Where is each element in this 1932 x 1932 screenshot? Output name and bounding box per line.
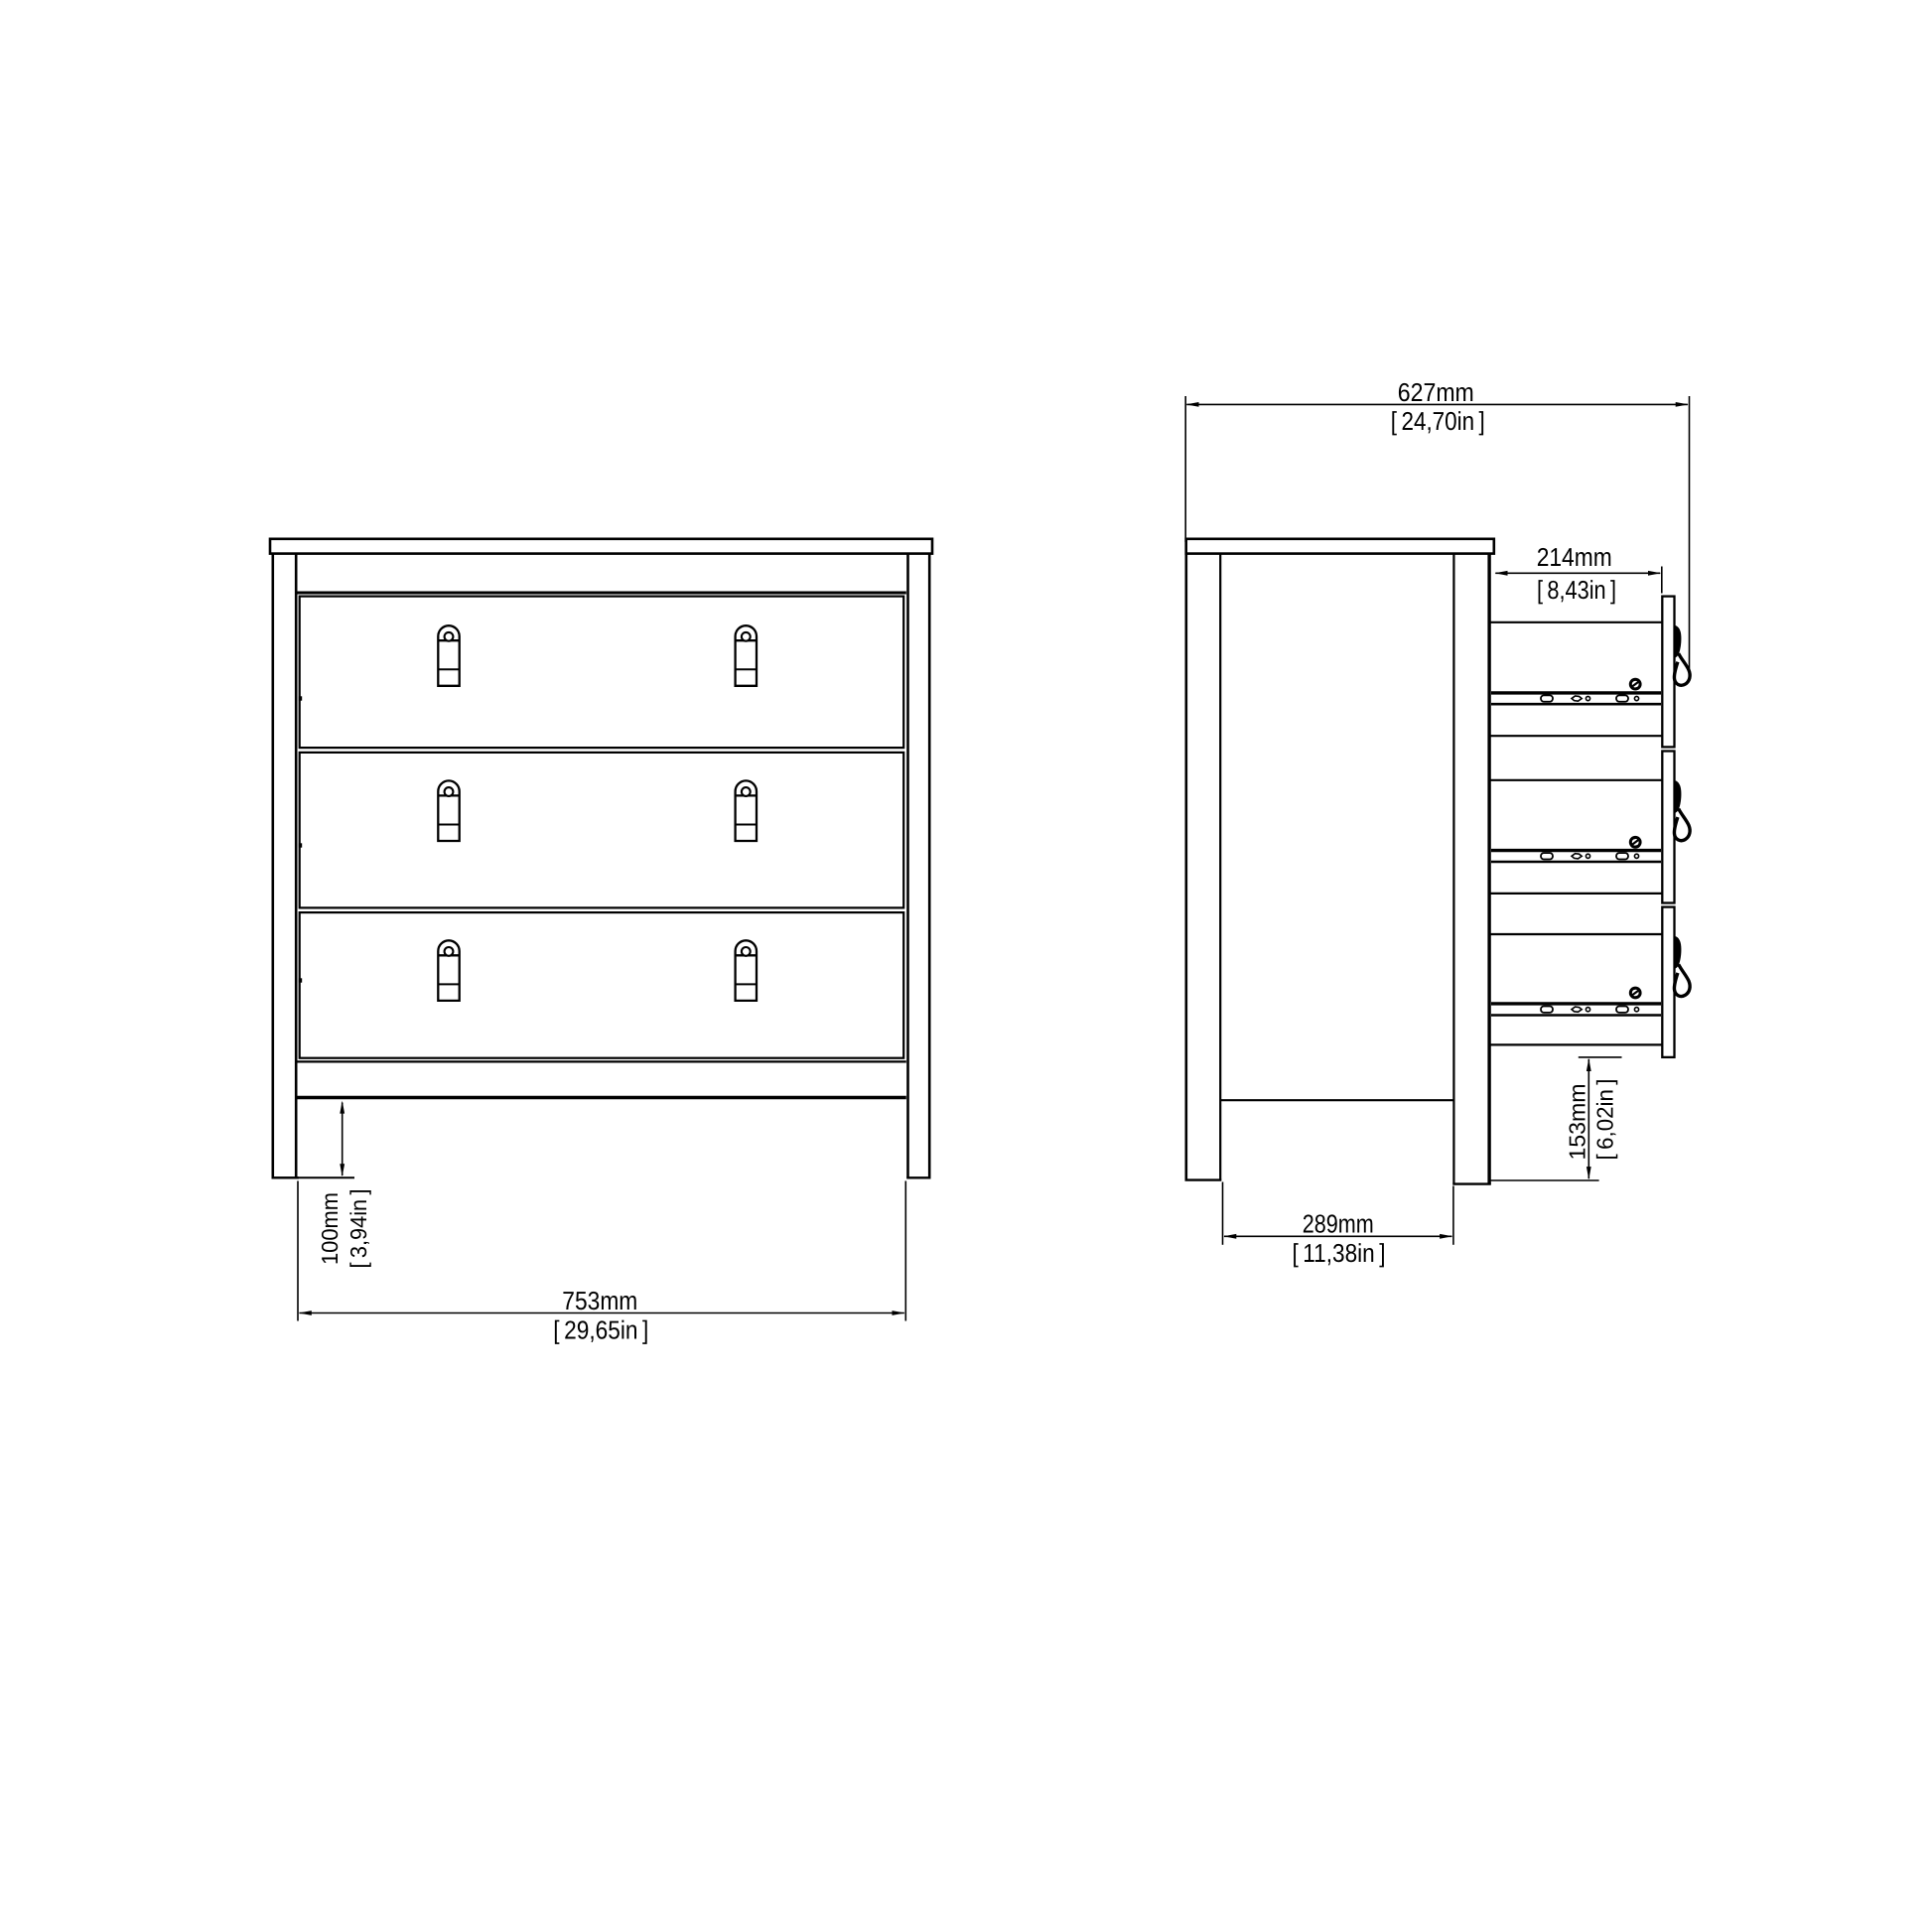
svg-text:100mm: 100mm — [317, 1192, 343, 1265]
svg-text:[ 11,38in ]: [ 11,38in ] — [1293, 1238, 1386, 1268]
svg-text:153mm: 153mm — [1565, 1084, 1590, 1161]
svg-text:214mm: 214mm — [1537, 542, 1612, 572]
svg-text:[ 3,94in ]: [ 3,94in ] — [345, 1189, 371, 1269]
svg-text:[ 24,70in ]: [ 24,70in ] — [1391, 406, 1485, 436]
svg-text:[ 8,43in ]: [ 8,43in ] — [1537, 575, 1616, 605]
svg-text:[ 29,65in ]: [ 29,65in ] — [553, 1314, 648, 1344]
svg-text:627mm: 627mm — [1398, 377, 1474, 407]
svg-text:289mm: 289mm — [1303, 1209, 1374, 1239]
svg-text:753mm: 753mm — [562, 1286, 637, 1315]
svg-text:[ 6,02in ]: [ 6,02in ] — [1592, 1079, 1618, 1161]
